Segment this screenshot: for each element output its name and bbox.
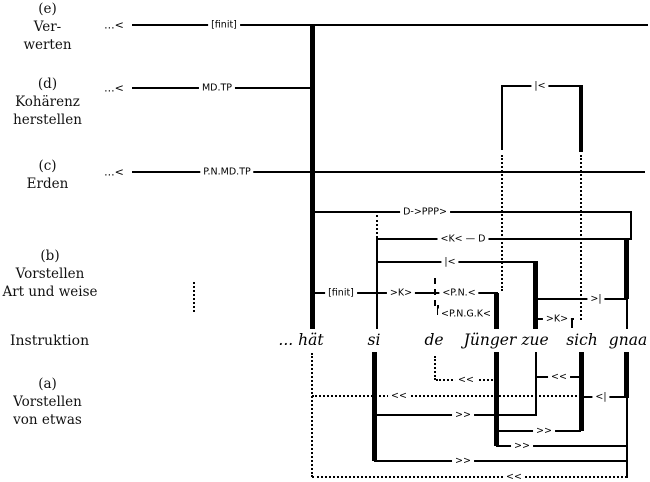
pn-label: <P.N.< bbox=[439, 288, 478, 299]
d-bracket-left-post bbox=[501, 85, 503, 150]
tier-b-tag: (b) bbox=[0, 247, 100, 265]
juenger-upper-post bbox=[494, 293, 499, 329]
word-si: si bbox=[368, 331, 381, 349]
d-bracket-right-post bbox=[579, 85, 583, 152]
tier-e-line1: Ver- bbox=[0, 18, 95, 36]
tier-b-heading: (b) Vorstellen Art und weise bbox=[0, 247, 100, 301]
bottom-dotted-line bbox=[312, 476, 627, 478]
tier-e-heading: (e) Ver- werten bbox=[0, 0, 95, 54]
tier-c-pnmdtp-label: P.N.MD.TP bbox=[200, 167, 253, 178]
gtbar-line bbox=[537, 298, 627, 300]
tier-c-line1: Erden bbox=[0, 175, 95, 193]
si-gnaa-arrow: >> bbox=[452, 456, 474, 467]
gnaa-lower-thick-post bbox=[624, 352, 629, 398]
tier-a-line1: Vorstellen bbox=[0, 393, 95, 411]
dppp-line bbox=[313, 211, 632, 213]
word-juenger: Jünger bbox=[464, 331, 517, 349]
tier-a-line2: von etwas bbox=[0, 411, 95, 429]
bottom-arrow: << bbox=[503, 472, 525, 482]
sich-gnaa-arrow: <| bbox=[592, 392, 609, 403]
word-haet: ... hät bbox=[278, 331, 323, 349]
long-dotted-line bbox=[312, 395, 581, 397]
tier-c-tag: (c) bbox=[0, 157, 95, 175]
gnaa-lower-thin-post bbox=[626, 398, 628, 478]
tier-a-tag: (a) bbox=[0, 375, 95, 393]
sich-dotted-post bbox=[580, 155, 582, 320]
d-bracket-label: |< bbox=[531, 81, 548, 92]
kd-label: <K< — D bbox=[437, 234, 488, 245]
mid-bracket-label: |< bbox=[441, 257, 458, 268]
tier-e-finit-label: [finit] bbox=[208, 20, 240, 31]
juenger-sich-arrow: >> bbox=[533, 426, 555, 437]
tier-e-prefix: ...< bbox=[101, 20, 127, 31]
word-gnaa: gnaa bbox=[609, 331, 647, 349]
tier-d-tag: (d) bbox=[0, 75, 95, 93]
sich-lower-post bbox=[579, 352, 584, 431]
gnaa-upper-thin-post bbox=[626, 298, 628, 329]
tier-d-line2: herstellen bbox=[0, 111, 95, 129]
finit-label: [finit] bbox=[325, 288, 357, 299]
kd-dotted-riser bbox=[376, 215, 378, 238]
tier-a-heading: (a) Vorstellen von etwas bbox=[0, 375, 95, 429]
tier-d-heading: (d) Kohärenz herstellen bbox=[0, 75, 95, 129]
main-trunk-line bbox=[310, 25, 315, 329]
word-zue: zue bbox=[521, 331, 548, 349]
k-upper-label: >K> bbox=[387, 288, 415, 299]
zue-upper-post bbox=[533, 261, 538, 329]
valency-structure-diagram: (e) Ver- werten (d) Kohärenz herstellen … bbox=[0, 0, 650, 482]
tier-d-mdtp-label: MD.TP bbox=[199, 83, 235, 94]
long-left-arrow: << bbox=[388, 391, 410, 402]
tier-d-line1: Kohärenz bbox=[0, 93, 95, 111]
word-de: de bbox=[424, 331, 443, 349]
de-lower-dotted-post bbox=[434, 356, 436, 380]
tier-c-prefix: ...< bbox=[101, 167, 127, 178]
juenger-gnaa-arrow: >> bbox=[511, 441, 533, 452]
si-zue-arrow: >> bbox=[452, 410, 474, 421]
zue-lower-post bbox=[535, 352, 537, 416]
tier-e-line2: werten bbox=[0, 36, 95, 54]
gnaa-upper-thick-post bbox=[624, 238, 629, 299]
tier-b-line2: Art und weise bbox=[0, 283, 100, 301]
tier-e-tag: (e) bbox=[0, 0, 95, 18]
de-dashdot-post bbox=[434, 278, 436, 306]
zue-sich-arrow: << bbox=[548, 372, 570, 383]
word-sich: sich bbox=[566, 331, 598, 349]
de-juenger-arrow: << bbox=[455, 375, 477, 386]
dppp-drop-post bbox=[630, 211, 632, 239]
tier-c-heading: (c) Erden bbox=[0, 157, 95, 193]
tier-b-line1: Vorstellen bbox=[0, 265, 100, 283]
si-lower-post bbox=[372, 352, 377, 461]
instruktion-label: Instruktion bbox=[10, 333, 89, 349]
b-continuation-dots bbox=[193, 282, 195, 312]
kd-line bbox=[377, 238, 632, 240]
tier-d-prefix: ...< bbox=[101, 83, 127, 94]
haet-lower-dotted-post bbox=[311, 353, 313, 477]
pngk-label: <P.N.G.K< bbox=[438, 309, 494, 320]
k-lower-label: >K> bbox=[543, 314, 571, 325]
juenger-dotted-post bbox=[501, 155, 503, 291]
si-upper-post bbox=[376, 238, 378, 329]
si-gnaa-line bbox=[374, 460, 627, 462]
gtbar-label: >| bbox=[587, 294, 604, 305]
dppp-label: D->PPP> bbox=[400, 207, 450, 218]
k-lower-hook bbox=[571, 318, 573, 328]
